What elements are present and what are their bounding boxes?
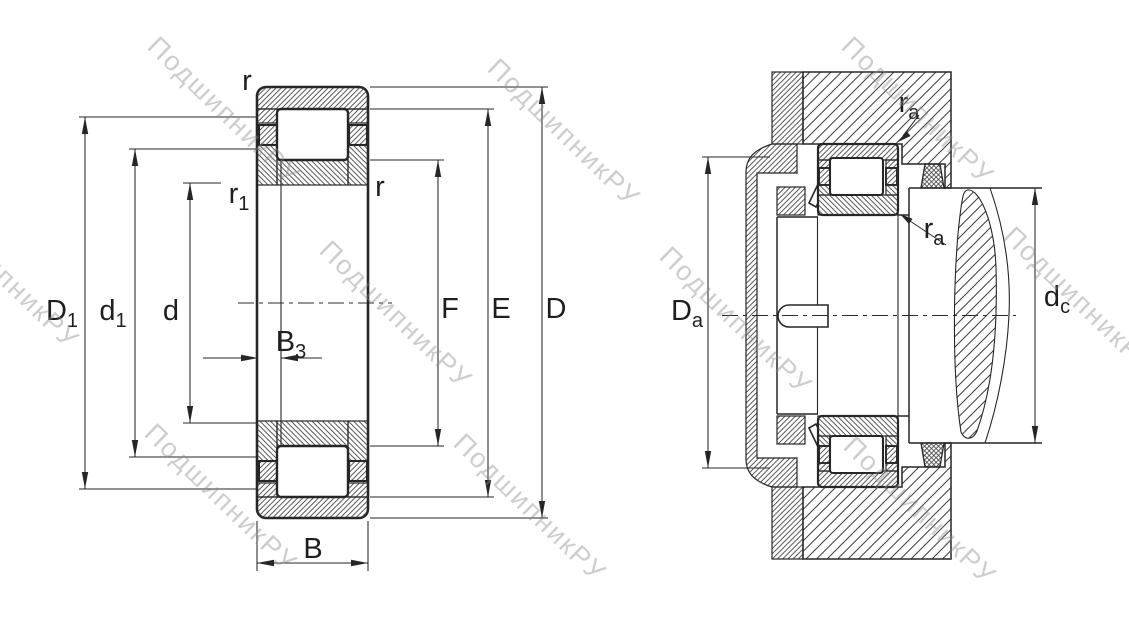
label-r-top: r [242,65,252,97]
inner-ring-bottom-left [257,421,277,461]
outer-ring-lip-right [348,109,368,123]
label-d: d [163,295,179,327]
outer-ring-bottom-band [257,497,368,518]
outer-ring-lip-bottom-right [348,483,368,497]
label-r-right: r [375,171,385,203]
angle-ring-top [777,187,805,215]
cover-strip-bottom [772,487,803,559]
cage-section-top-right [349,125,367,145]
label-ra-bottom: ra [924,213,946,250]
roller-bottom [277,446,348,497]
label-F: F [441,293,459,325]
outer-ring-top-band [257,87,368,109]
dim-dc [1032,188,1038,443]
inner-ring-bottom-band [277,421,348,446]
watermark-text: ПодшипникРУ [482,53,646,213]
inner-ring-flange-top-right [348,145,368,185]
watermark-text: ПодшипникРУ [448,428,612,588]
seal-ring-top [921,164,944,188]
label-E: E [491,293,510,325]
inner-ring-bottom-right [348,421,368,461]
cage-section-bottom-right [349,461,367,481]
watermark-text: ПодшипникРУ [0,195,85,355]
label-d1: d1 [99,295,126,332]
outer-ring-lip-bottom-left [257,483,277,497]
outer-ring-lip-left [257,109,277,123]
label-B: B [303,533,322,565]
angle-ring-bottom [777,416,805,444]
seal-ring-bottom [921,443,944,467]
shaft-broken-section [954,190,996,438]
cover-strip-top [772,72,803,144]
cage-section-bottom-left [259,461,277,481]
bearing-technical-drawing: r r1 r D1 d1 d B3 B F E D ra ra Da dc По… [0,0,1129,632]
label-D: D [546,293,567,325]
watermark-text: ПодшипникРУ [998,221,1129,381]
label-r1: r1 [229,178,250,215]
